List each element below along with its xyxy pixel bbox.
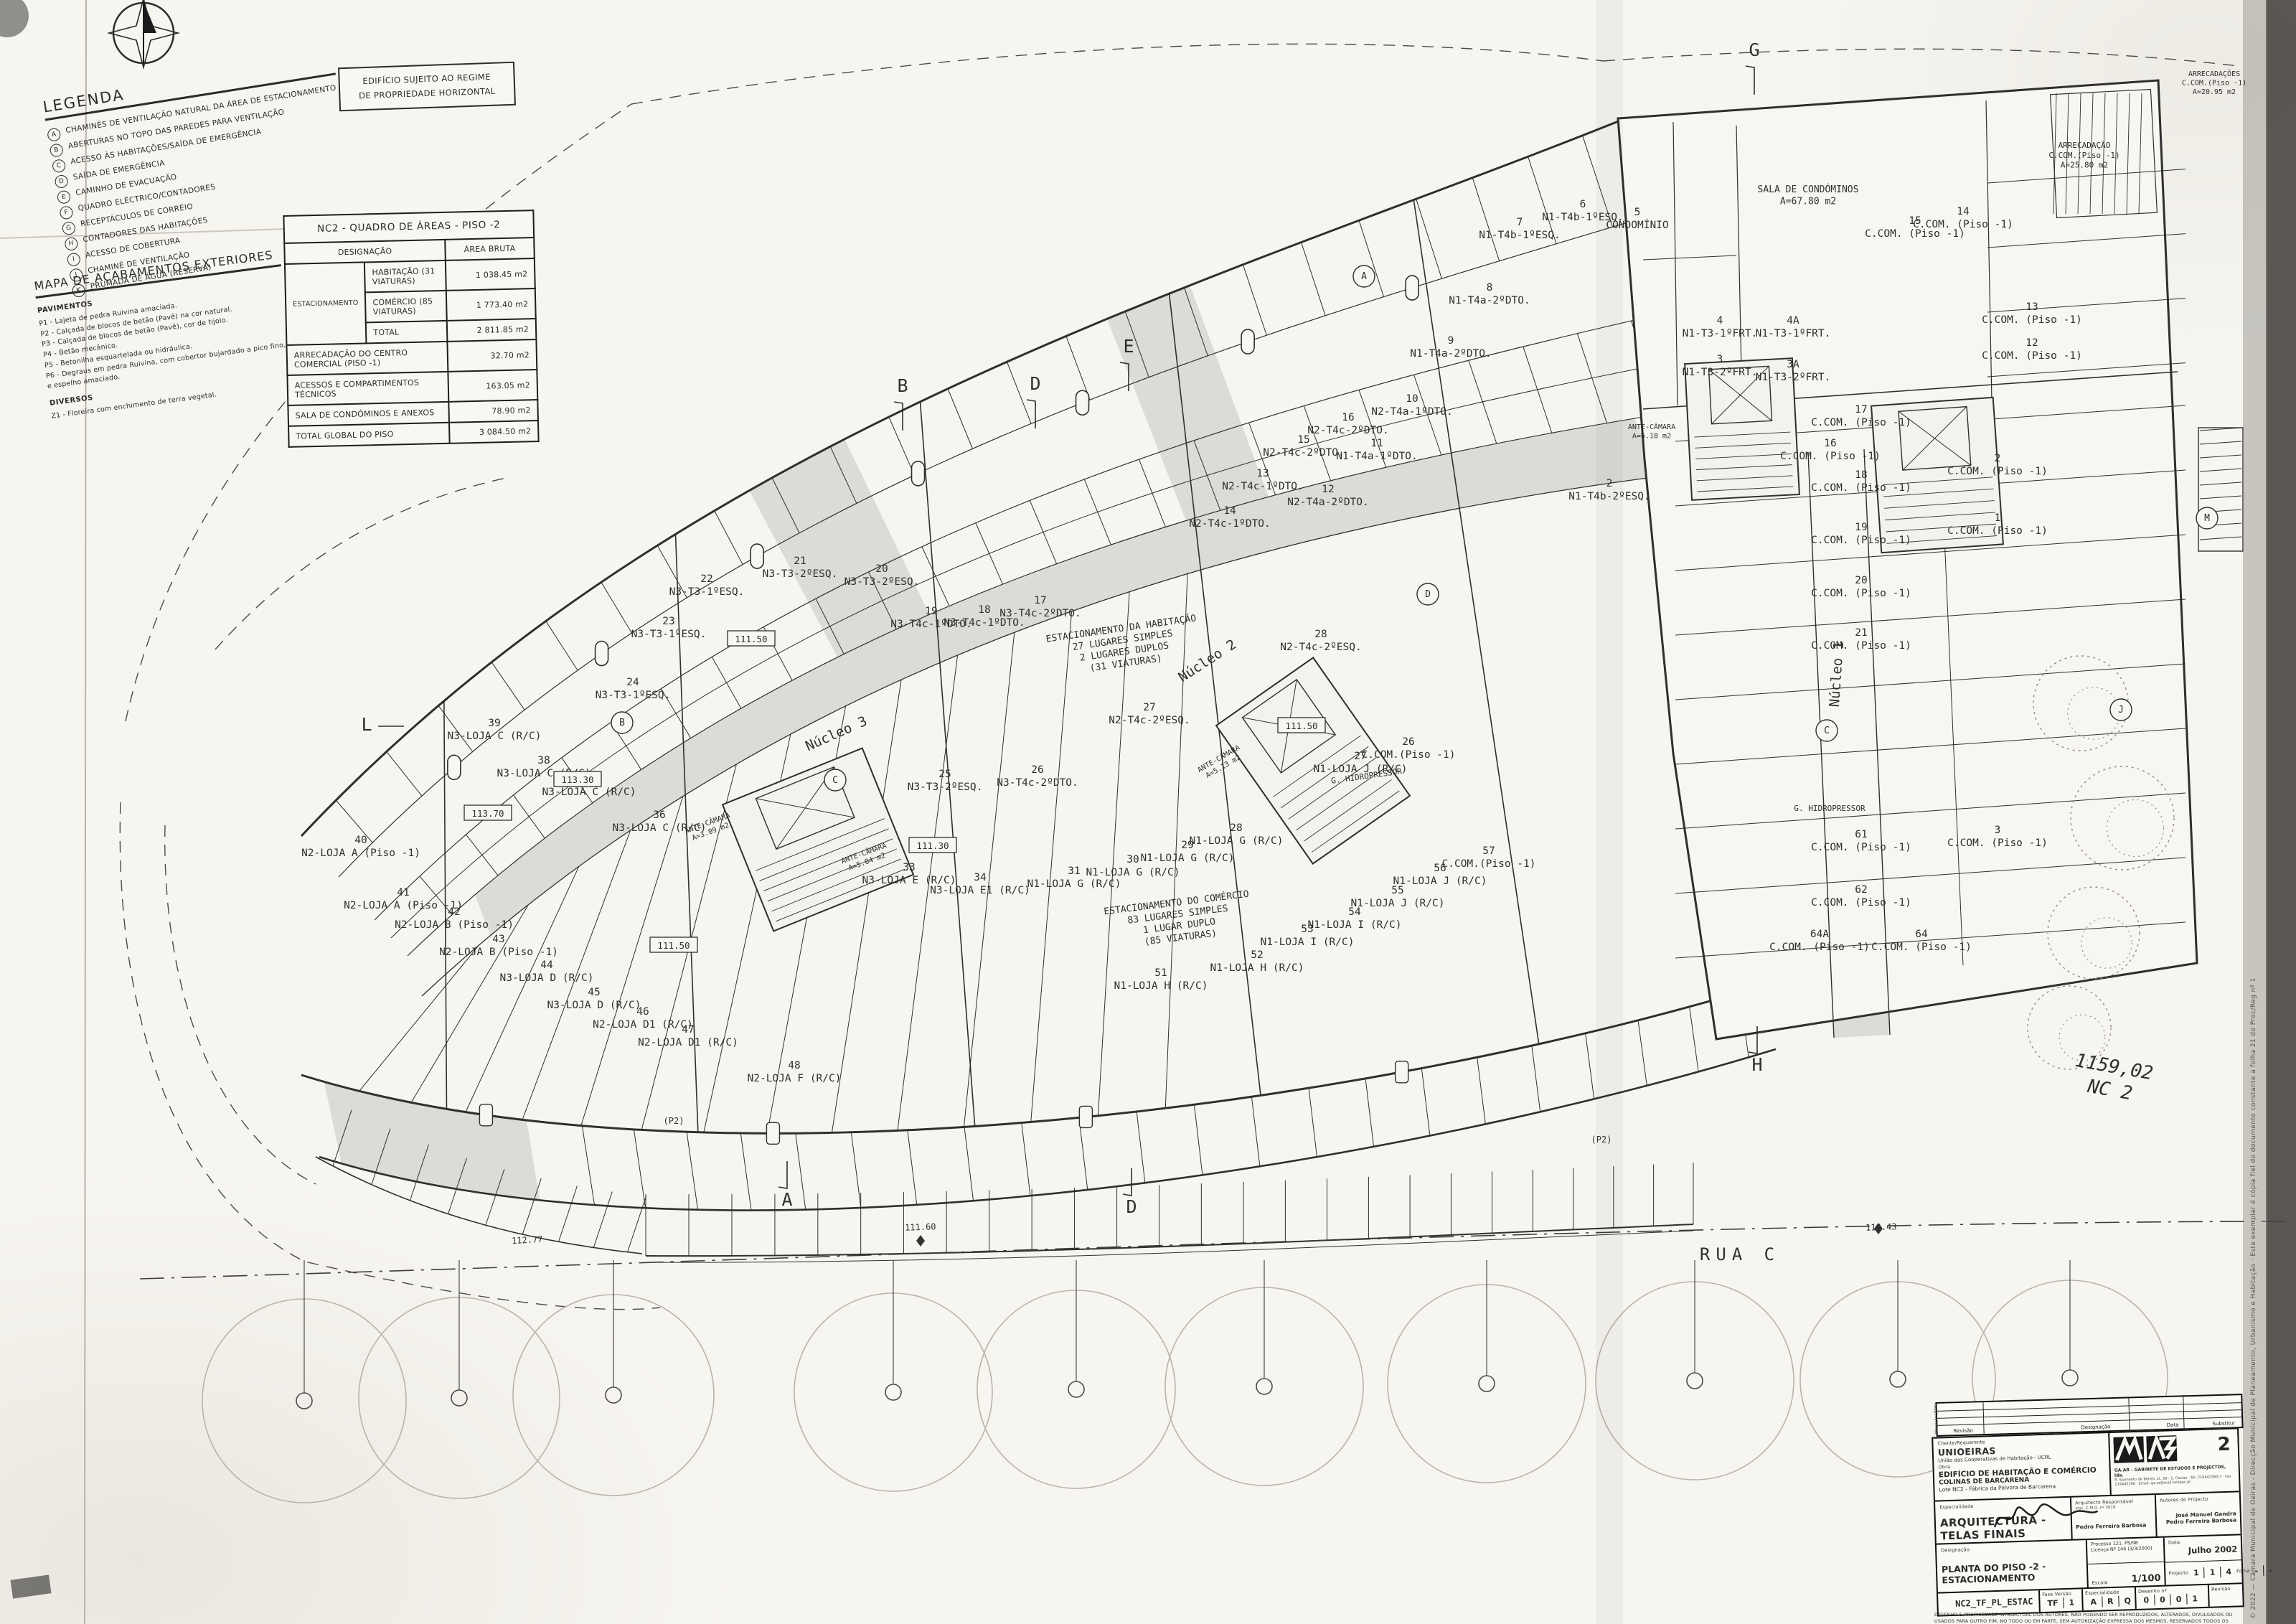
street-centerline: [140, 1221, 2285, 1279]
stall-label: 11N1-T4a-1ºDTO.: [1336, 438, 1418, 462]
reference-letter: M: [2204, 513, 2210, 524]
areas-row-value: 2 811.85 m2: [447, 319, 537, 342]
tree-symbol: [1388, 1260, 1586, 1483]
areas-row-value: 3 084.50 m2: [449, 421, 539, 443]
escala-value: 1/100: [2131, 1573, 2160, 1585]
vent-chimney-icon: [1076, 390, 1089, 415]
author-2: Pedro Ferreira Barbosa: [2160, 1516, 2236, 1525]
hand: 1159,02NC 2: [2069, 1050, 2155, 1108]
elevation-value: 111.50: [1285, 721, 1317, 731]
revisao-label: Revisão: [2211, 1586, 2231, 1592]
grid-letter: L: [361, 714, 372, 735]
stall-label: 24N3-T3-1ºESQ.: [596, 677, 671, 701]
processo-line2: Licença Nº 146 (3/3/2000): [2091, 1545, 2160, 1553]
vent-chimney-icon: [1406, 276, 1418, 300]
stall-label: 15N2-T4c-2ºDTO.: [1263, 434, 1345, 459]
areas-table: NC2 - QUADRO DE ÁREAS - PISO -2 DESIGNAÇ…: [283, 210, 539, 448]
sheet-number: 2: [2217, 1434, 2231, 1456]
obra-label: Obra: [1938, 1464, 1950, 1470]
designacao-label: Designação: [1941, 1546, 1970, 1553]
copyright-note: DESENHO E PROPRIEDADE INTELECTUAL DOS AU…: [1934, 1612, 2243, 1624]
tree-symbol: [513, 1260, 714, 1496]
vent-chimney-icon: [751, 544, 763, 568]
areas-table-body: ESTACIONAMENTOHABITAÇÃO (31 VIATURAS)1 0…: [285, 258, 539, 447]
north-compass-icon: [100, 0, 187, 78]
code-cell: A: [2085, 1596, 2102, 1607]
gaar-logo: [2113, 1434, 2180, 1465]
legend-key-badge: D: [54, 174, 69, 189]
legend-key-badge: E: [57, 189, 72, 205]
stall-label: 57C.COM.(Piso -1): [1442, 845, 1536, 870]
areas-row-label: ACESSOS E COMPARTIMENTOS TÉCNICOS: [287, 372, 448, 405]
property-regime-note: EDIFÍCIO SUJEITO AO REGIME DE PROPRIEDAD…: [338, 62, 516, 112]
code-cell: -: [2263, 1565, 2277, 1577]
areas-row-value: 1 038.45 m2: [446, 258, 535, 291]
stall-label: 54N1-LOJA I (R/C): [1308, 906, 1402, 931]
stall-label: 10N2-T4a-1ºDTO.: [1371, 393, 1453, 418]
signature-scribble: [1991, 1497, 2100, 1538]
stamp-certification: Este exemplar é cópia fiel do documento …: [2250, 977, 2257, 1256]
reference-letter: B: [619, 718, 625, 728]
projecto-label: Projecto: [2168, 1570, 2188, 1577]
reference-letter: C: [832, 775, 838, 786]
vent-chimney-icon: [448, 755, 461, 779]
municipal-stamp: © 2022 — Câmara Municipal de Oeiras - Di…: [2250, 977, 2257, 1619]
authors-label: Autores do Projecto: [2160, 1496, 2208, 1503]
vent-chimney-icon: [596, 642, 608, 666]
stair-core: [723, 748, 913, 931]
code-cell: 0: [2154, 1594, 2170, 1605]
legend-key-badge: B: [49, 143, 64, 158]
tree-symbol: [977, 1260, 1175, 1488]
stall-label: 40N2-LOJA A (Piso -1): [301, 835, 420, 859]
areas-row-value: 32.70 m2: [447, 339, 537, 372]
vent-opening-icon: [1396, 1061, 1408, 1083]
grid-letter: D: [1126, 1196, 1137, 1217]
grid-letter: A: [781, 1189, 792, 1210]
plan-annotation: (P2): [664, 1116, 684, 1126]
areas-row-value: 1 773.40 m2: [446, 288, 536, 321]
reference-letter: C: [1824, 726, 1830, 736]
plan-annotation: ESTACIONAMENTO DO COMÉRCIO83 LUGARES SIM…: [1104, 888, 1254, 952]
especialidade-label: Especialidade: [1939, 1503, 1974, 1510]
stall-label: 43N2-LOJA B (Piso -1): [439, 934, 558, 958]
grid-letter: E: [1123, 336, 1134, 357]
elevation-value: 111.30: [916, 840, 949, 851]
stall-label: 9N1-T4a-2ºDTO.: [1410, 335, 1492, 360]
title-block: Cliente/Requerente UNIOEIRAS União das C…: [1932, 1427, 2244, 1616]
code-cell: 4: [2220, 1566, 2236, 1577]
especialidade2-cells: ARQ: [2085, 1595, 2132, 1607]
grid-letter: G: [1749, 39, 1759, 60]
areas-row-value: 78.90 m2: [448, 400, 538, 423]
plan-annotation: Núcleo 2: [1175, 637, 1239, 685]
stall-label: 25N3-T3-2ºESQ.: [908, 769, 983, 793]
areas-row-label: COMÉRCIO (85 VIATURAS): [365, 291, 447, 323]
reference-letter: A: [1361, 271, 1367, 282]
plan-annotation: G. HIDROPRESSOR: [1794, 804, 1865, 813]
stall-label: 28N2-T4c-2ºESQ.: [1280, 629, 1362, 653]
corridor-shading: [324, 1081, 540, 1200]
elevation-value: 113.30: [561, 774, 593, 785]
code-cell: 1: [2204, 1567, 2221, 1578]
legend-key-badge: H: [64, 237, 79, 252]
code-cell: 0: [2170, 1594, 2187, 1605]
code-cell: 0: [2138, 1595, 2154, 1606]
grid-letter: B: [897, 375, 908, 396]
stall-label: 52N1-LOJA H (R/C): [1210, 949, 1304, 974]
plan-annotation: (P2): [1591, 1135, 1612, 1145]
desenho-cells: 0001: [2138, 1593, 2206, 1606]
tree-symbol: [1165, 1260, 1363, 1485]
code-cell: Q: [2118, 1595, 2136, 1607]
stamp-year: © 2022: [2250, 1592, 2257, 1619]
stall-label: 23N3-T3-1ºESQ.: [631, 616, 707, 640]
rev-col-alteracoes: Alterações/Data: [1934, 1403, 1939, 1435]
vent-chimney-icon: [912, 461, 925, 486]
tree-symbol: [1596, 1260, 1794, 1480]
rev-col-data: Data: [2167, 1422, 2179, 1428]
areas-col-area: ÁREA BRUTA: [445, 238, 535, 261]
plan-annotation: 111.60: [905, 1221, 936, 1233]
drawing-sheet: 2N1-T4b-2ºESQ.6N1-T4b-1ºESQ.7N1-T4b-1ºES…: [0, 0, 2296, 1624]
plan-annotation: ARRECADAÇÕESC.COM.(Piso -1)A=20.95 m2: [2182, 69, 2246, 96]
legend-key-badge: G: [62, 221, 77, 236]
plan-annotation: 112.77: [512, 1234, 543, 1246]
stall-label: 48N2-LOJA F (R/C): [748, 1060, 842, 1084]
plan-annotation: 110.43: [1865, 1221, 1897, 1233]
grid-letter: D: [1030, 373, 1040, 394]
rev-col-designacao: Designação: [2081, 1424, 2110, 1430]
vent-opening-icon: [479, 1104, 492, 1126]
code-cell: TF: [2042, 1597, 2063, 1609]
stall-label: 55N1-LOJA J (R/C): [1351, 885, 1445, 909]
vent-opening-icon: [766, 1122, 779, 1144]
plan-annotation: RUA C: [1700, 1244, 1780, 1264]
data-label: Data: [2168, 1539, 2180, 1546]
tree-symbol: [202, 1260, 406, 1503]
folha-label: Folha: [2236, 1568, 2250, 1574]
fase-label: Fase Versão: [2042, 1591, 2071, 1597]
areas-row-label: ARRECADAÇÃO DO CENTRO COMERCIAL (PISO -1…: [286, 342, 448, 375]
areas-row-label: HABITAÇÃO (31 VIATURAS): [364, 261, 446, 293]
stall-label: 8N1-T4a-2ºDTO.: [1449, 282, 1530, 306]
stamp-entity: Câmara Municipal de Oeiras - Direcção Mu…: [2250, 1263, 2257, 1580]
legend-key-badge: A: [47, 127, 62, 142]
rev-col-revisao: Revisão: [1953, 1428, 1972, 1435]
legend-key-badge: I: [66, 252, 81, 267]
stall-label: 39N3-LOJA C (R/C): [448, 718, 542, 742]
fase-cells: TF1: [2042, 1597, 2079, 1609]
areas-row-label: TOTAL GLOBAL DO PISO: [288, 423, 450, 447]
plan-annotation: ANTE-CÂMARAA=3.09 m2: [683, 810, 734, 844]
designacao-value: PLANTA DO PISO -2 - ESTACIONAMENTO: [1942, 1559, 2083, 1585]
projecto-cells: 114: [2188, 1566, 2236, 1578]
stall-label: 28N1-LOJA G (R/C): [1190, 822, 1284, 847]
areas-row-label: TOTAL: [366, 321, 447, 344]
reference-letter: J: [2118, 705, 2124, 715]
code-cell: 1: [2186, 1593, 2203, 1605]
stall-label: 27N2-T4c-2ºESQ.: [1109, 702, 1190, 726]
areas-row-value: 163.05 m2: [448, 370, 537, 402]
stall-label: 44N3-LOJA D (R/C): [500, 959, 594, 984]
reference-letter: D: [1425, 589, 1431, 600]
desenho-label: Desenho nº: [2138, 1588, 2167, 1595]
code-cell: 1: [2188, 1567, 2204, 1579]
code-cell: 1: [2063, 1597, 2079, 1608]
areas-group-label: ESTACIONAMENTO: [285, 262, 367, 344]
elevation-value: 111.50: [735, 634, 767, 644]
elevation-value: 113.70: [471, 808, 504, 819]
legend-key-badge: F: [59, 205, 74, 220]
tree-symbol: [794, 1260, 992, 1491]
especialidade2-label: Especialidade: [2085, 1590, 2119, 1596]
scan-edge-band: [2266, 0, 2296, 1624]
stall-label: 45N3-LOJA D (R/C): [547, 987, 641, 1011]
escala-label: Escala: [2092, 1580, 2108, 1586]
tree-symbol: [359, 1260, 560, 1498]
data-value: Julho 2002: [2168, 1544, 2237, 1556]
legend-key-badge: C: [52, 159, 67, 174]
code-cell: R: [2102, 1596, 2119, 1607]
elevation-value: 111.50: [657, 940, 690, 951]
stall-label: 51N1-LOJA H (R/C): [1114, 967, 1208, 992]
rev-col-substitui: Substitui: [2212, 1420, 2234, 1427]
plan-annotation: ANTE-CÂMARAA=6.18 m2: [1628, 422, 1675, 441]
vent-opening-icon: [1079, 1106, 1092, 1127]
vent-chimney-icon: [1241, 329, 1254, 354]
stall-label: 26N3-T4c-2ºDTO.: [997, 764, 1078, 789]
grid-letter: H: [1751, 1054, 1762, 1075]
